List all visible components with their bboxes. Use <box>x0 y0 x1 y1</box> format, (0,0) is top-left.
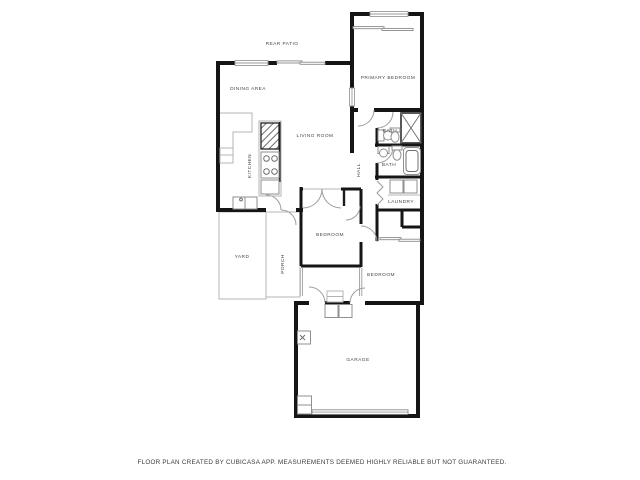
window-primary-left <box>350 88 355 106</box>
shower <box>401 113 421 143</box>
stove <box>261 152 279 178</box>
closet-double-door-right <box>322 189 341 208</box>
room-label-bedroom-middle: BEDROOM <box>316 232 344 238</box>
electrical-panel <box>298 331 311 344</box>
bedroom-middle-door <box>361 226 377 242</box>
kitchen-sink <box>233 197 257 209</box>
utility-box-1 <box>298 396 312 405</box>
room-label-bath-upper: BATH <box>383 128 397 134</box>
room-label-kitchen: KITCHEN <box>247 154 253 178</box>
front-door <box>350 288 365 303</box>
garage-entry-door <box>309 287 325 303</box>
room-label-bath-lower: BATH <box>382 162 396 168</box>
refrigerator <box>261 123 279 149</box>
laundry-bifold-door <box>377 181 383 205</box>
window-primary-top <box>370 12 408 17</box>
room-label-primary-bedroom: PRIMARY BEDROOM <box>361 75 416 81</box>
exterior-walls <box>218 12 424 418</box>
room-label-living-room: LIVING ROOM <box>297 133 334 139</box>
room-label-yard: YARD <box>235 254 250 260</box>
room-label-laundry: LAUNDRY <box>388 199 414 205</box>
furnace <box>339 305 352 318</box>
closet-double-door-left <box>303 189 322 208</box>
bathtub <box>404 148 421 175</box>
bath-upper-fixtures <box>378 113 421 143</box>
room-label-porch: PORCH <box>280 254 286 274</box>
sink-lower <box>378 147 389 158</box>
dishwasher <box>261 180 279 194</box>
primary-closet-slider <box>353 27 413 31</box>
floor-plan-canvas: REAR PATIO DINING AREA PRIMARY BEDROOM L… <box>0 0 640 480</box>
primary-bedroom-door <box>358 110 374 126</box>
water-heater <box>325 305 338 318</box>
room-label-garage: GARAGE <box>346 357 369 363</box>
bath-lower-fixtures <box>378 146 421 175</box>
window-dining <box>235 61 268 66</box>
utility-box-2 <box>298 405 312 414</box>
sliding-patio-door <box>277 61 325 64</box>
dryer <box>404 180 417 193</box>
room-label-hall: HALL <box>356 163 362 177</box>
footer-note: FLOOR PLAN CREATED BY CUBICASA APP. MEAS… <box>137 459 506 466</box>
garage-fixtures <box>298 291 409 414</box>
laundry-fixtures <box>388 180 420 195</box>
bath-upper-door <box>377 112 393 128</box>
bedroom-right-closet-slider <box>380 238 420 242</box>
entry-step <box>327 291 343 302</box>
toilet-lower <box>392 146 402 160</box>
closet-single-door <box>346 206 360 220</box>
room-labels: REAR PATIO DINING AREA PRIMARY BEDROOM L… <box>230 41 415 363</box>
room-label-dining-area: DINING AREA <box>230 86 266 92</box>
room-label-bedroom-right: BEDROOM <box>367 272 395 278</box>
back-door-leaf-in <box>266 195 281 210</box>
floor-plan-drawing: REAR PATIO DINING AREA PRIMARY BEDROOM L… <box>0 0 640 480</box>
garage-door <box>312 410 408 415</box>
room-label-rear-patio: REAR PATIO <box>266 41 299 47</box>
washer <box>390 180 403 193</box>
